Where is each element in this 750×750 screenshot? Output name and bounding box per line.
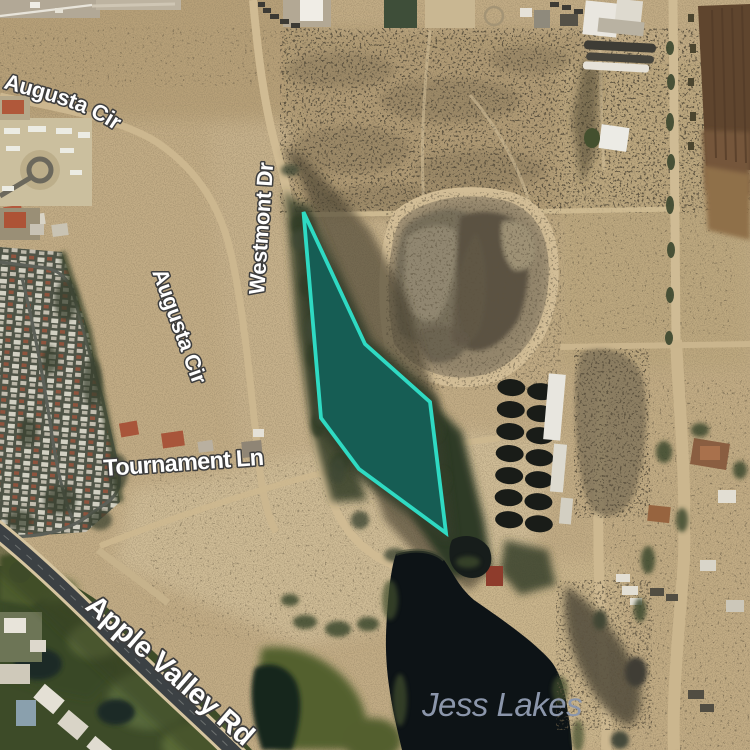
- svg-text:Jess Lakes: Jess Lakes: [421, 686, 582, 723]
